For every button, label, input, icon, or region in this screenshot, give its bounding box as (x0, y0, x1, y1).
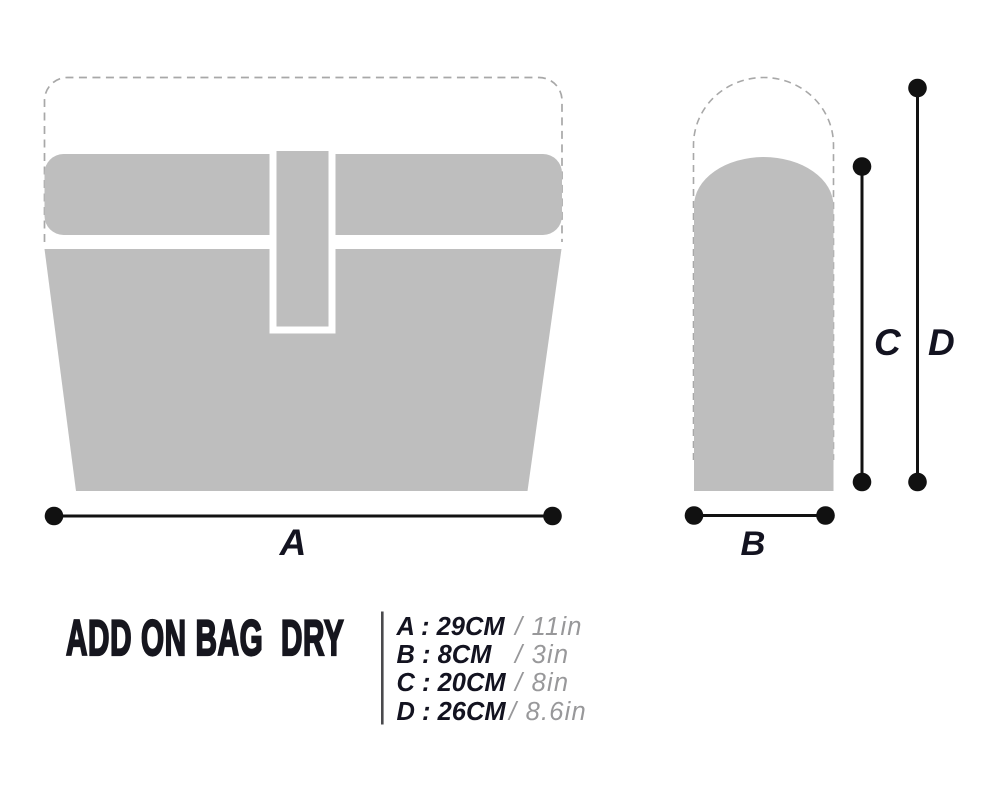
svg-text:C: C (874, 322, 902, 363)
svg-text:ADD ON BAG DRY: ADD ON BAG DRY (66, 610, 344, 666)
svg-text:C : 20CM: C : 20CM (397, 669, 507, 697)
svg-text:D: D (928, 322, 955, 363)
svg-text:/ 11in: / 11in (513, 613, 583, 641)
svg-text:/ 3in: / 3in (513, 641, 569, 669)
svg-text:B: B (741, 525, 766, 563)
svg-text:B : 8CM: B : 8CM (397, 641, 493, 669)
svg-text:A: A (279, 522, 307, 563)
svg-text:/ 8.6in: / 8.6in (507, 698, 587, 726)
svg-text:A : 29CM: A : 29CM (396, 613, 506, 641)
svg-text:D : 26CM: D : 26CM (397, 698, 507, 726)
svg-text:/ 8in: / 8in (513, 669, 569, 697)
